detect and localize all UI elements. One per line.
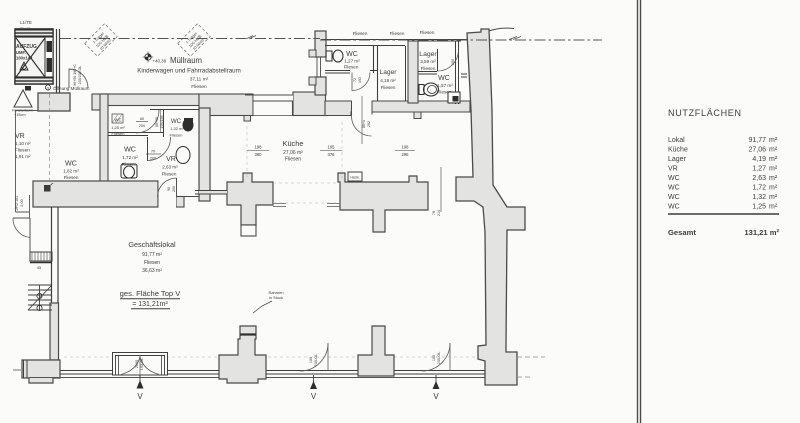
svg-text:2,63: 2,63	[752, 175, 766, 182]
svg-text:200: 200	[172, 186, 176, 192]
svg-text:m²: m²	[769, 156, 778, 163]
svg-text:G: G	[47, 87, 50, 91]
svg-text:100: 100	[309, 357, 313, 363]
svg-text:Fliesen: Fliesen	[144, 260, 160, 266]
svg-text:3,59 m²: 3,59 m²	[420, 59, 436, 64]
svg-text:80+x: 80+x	[362, 120, 366, 128]
svg-text:Lager: Lager	[668, 156, 687, 163]
svg-text:1,10 m²: 1,10 m²	[15, 141, 31, 146]
svg-text:WC: WC	[124, 145, 136, 154]
svg-text:198: 198	[402, 145, 410, 150]
svg-text:193: 193	[358, 77, 362, 83]
svg-text:1,91 m²: 1,91 m²	[15, 154, 31, 159]
svg-text:200: 200	[139, 124, 145, 128]
svg-text:Fliesen: Fliesen	[162, 172, 177, 177]
svg-text:Küche: Küche	[668, 147, 688, 154]
svg-text:193 OL: 193 OL	[140, 358, 144, 370]
svg-text:235/235 OL: 235/235 OL	[78, 66, 82, 85]
svg-text:230-OL: 230-OL	[314, 354, 318, 367]
svg-text:1,25: 1,25	[752, 204, 766, 211]
svg-text:295: 295	[402, 152, 410, 157]
svg-text:Fliesen: Fliesen	[191, 84, 207, 90]
svg-text:27,06 m²: 27,06 m²	[283, 150, 303, 156]
svg-text:90: 90	[167, 187, 171, 191]
svg-text:in Stuck: in Stuck	[269, 295, 283, 300]
svg-text:4,19 m²: 4,19 m²	[380, 78, 396, 83]
svg-text:90+50 195+C: 90+50 195+C	[73, 64, 77, 86]
svg-text:376: 376	[328, 152, 336, 157]
svg-text:1,57 m²: 1,57 m²	[437, 83, 453, 88]
svg-text:2F/2 161: 2F/2 161	[15, 196, 19, 211]
svg-text:UMF.: UMF.	[16, 50, 26, 55]
svg-text:36,63 m²: 36,63 m²	[142, 268, 162, 274]
svg-text:Fliesen: Fliesen	[421, 66, 436, 71]
svg-text:WC: WC	[668, 185, 680, 192]
svg-text:VR: VR	[166, 156, 176, 163]
svg-text:214: 214	[437, 210, 441, 216]
svg-text:1,32 m²: 1,32 m²	[170, 126, 184, 131]
svg-text:m²: m²	[769, 166, 778, 173]
svg-text:Kinderwagen und Fahrradabstell: Kinderwagen und Fahrradabstellraum	[137, 68, 241, 75]
svg-text:Heizk.: Heizk.	[350, 176, 359, 180]
svg-text:WC: WC	[668, 175, 680, 182]
svg-text:WC: WC	[171, 118, 182, 125]
svg-text:198: 198	[255, 145, 263, 150]
svg-text:WC: WC	[668, 194, 680, 201]
svg-text:Fliesen: Fliesen	[15, 148, 30, 153]
svg-text:m²: m²	[769, 147, 778, 154]
svg-text:131,21 m²: 131,21 m²	[744, 228, 779, 237]
svg-text:195: 195	[328, 145, 336, 150]
svg-text:VR: VR	[15, 133, 25, 140]
svg-text:Lager: Lager	[419, 51, 437, 58]
svg-text:NUTZFLÄCHEN: NUTZFLÄCHEN	[668, 108, 742, 118]
svg-text:72: 72	[353, 78, 357, 82]
svg-text:80: 80	[140, 117, 144, 121]
svg-text:m²: m²	[769, 185, 778, 192]
svg-text:1,72: 1,72	[752, 185, 766, 192]
svg-text:Fliesen: Fliesen	[353, 31, 368, 36]
svg-text:91,77: 91,77	[748, 137, 766, 144]
svg-text:L1/TE: L1/TE	[20, 20, 32, 25]
svg-text:Geschäftslokal: Geschäftslokal	[128, 240, 176, 249]
svg-text:2,00: 2,00	[20, 199, 24, 206]
svg-text:380: 380	[255, 152, 263, 157]
svg-text:100x140: 100x140	[16, 56, 33, 61]
svg-text:2,63 m²: 2,63 m²	[162, 165, 178, 170]
svg-text:V: V	[433, 392, 439, 401]
svg-text:Lager: Lager	[380, 69, 398, 76]
svg-text:76: 76	[432, 211, 436, 215]
svg-text:27,06: 27,06	[748, 147, 766, 154]
svg-text:1,72 m²: 1,72 m²	[122, 155, 138, 160]
svg-text:Gesamt: Gesamt	[668, 228, 696, 237]
svg-text:4,19: 4,19	[752, 156, 766, 163]
svg-text:1,27: 1,27	[752, 166, 766, 173]
svg-text:Fliesen: Fliesen	[344, 65, 359, 70]
svg-text:37,11 m²: 37,11 m²	[190, 77, 209, 83]
svg-text:202: 202	[367, 121, 371, 127]
svg-text:91,77 m²: 91,77 m²	[142, 252, 162, 258]
svg-text:45: 45	[37, 266, 41, 270]
svg-text:WC: WC	[65, 159, 77, 168]
svg-text:Fliesen: Fliesen	[112, 131, 125, 136]
svg-text:VR: VR	[668, 166, 678, 173]
svg-text:1,32: 1,32	[752, 194, 766, 201]
svg-text:85+95: 85+95	[155, 117, 159, 127]
svg-text:Fliesen: Fliesen	[285, 157, 301, 163]
svg-text:1,82 m²: 1,82 m²	[63, 169, 79, 174]
svg-text:70: 70	[151, 150, 155, 154]
svg-text:Fliesen: Fliesen	[420, 30, 435, 35]
svg-text:1,27 m²: 1,27 m²	[344, 59, 360, 64]
svg-text:m²: m²	[769, 137, 778, 144]
svg-text:Lokal: Lokal	[668, 137, 685, 144]
svg-text:WC: WC	[438, 75, 450, 82]
svg-text:— · —: — · —	[20, 26, 31, 30]
svg-text:V: V	[137, 392, 143, 401]
svg-text:1,25 m²: 1,25 m²	[111, 125, 125, 130]
svg-text:Fliesen: Fliesen	[64, 175, 79, 180]
svg-text:Fliesen: Fliesen	[390, 31, 405, 36]
svg-text:m²: m²	[769, 194, 778, 201]
svg-text:Fliesen: Fliesen	[381, 85, 396, 90]
svg-text:2x90: 2x90	[135, 360, 139, 368]
svg-text:V: V	[311, 392, 317, 401]
svg-text:WC: WC	[115, 118, 122, 123]
svg-text:230-OL: 230-OL	[437, 352, 441, 365]
svg-text:Öffnung Müllraum: Öffnung Müllraum	[53, 85, 90, 91]
svg-text:ges. Fläche Top V: ges. Fläche Top V	[120, 289, 182, 298]
svg-text:Fliesen: Fliesen	[170, 133, 183, 138]
svg-text:200: 200	[451, 59, 455, 65]
svg-text:= 131,21m²: = 131,21m²	[132, 301, 168, 308]
svg-text:Küche: Küche	[283, 139, 304, 148]
svg-text:m²: m²	[769, 175, 778, 182]
svg-text:WC: WC	[346, 51, 358, 58]
svg-text:WC: WC	[668, 204, 680, 211]
svg-text:+40,38: +40,38	[153, 59, 167, 64]
svg-text:100: 100	[432, 355, 436, 361]
svg-text:m²: m²	[769, 204, 778, 211]
svg-text:Müllraum: Müllraum	[170, 56, 202, 65]
